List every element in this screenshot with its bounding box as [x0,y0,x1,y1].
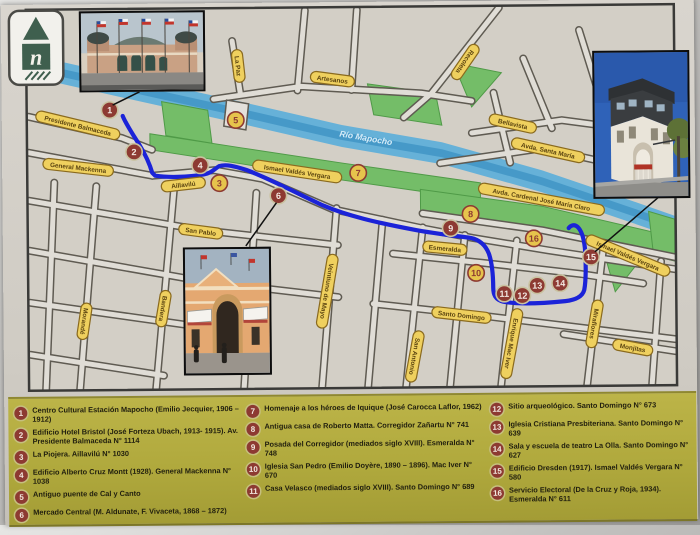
map-area: Presidente BalmacedaGeneral MackennaAill… [1,0,700,530]
map-marker-3: 3 [211,175,228,192]
legend-text: Edificio Dresden (1917). Ismael Valdés V… [509,462,695,482]
map-marker-9: 9 [442,220,459,237]
legend-text: Posada del Corregidor (mediados siglo XV… [265,438,483,458]
svg-text:12: 12 [517,291,527,301]
map-legend: 1Centro Cultural Estación Mapocho (Emili… [8,391,697,527]
svg-text:13: 13 [532,281,542,291]
svg-text:16: 16 [529,234,539,244]
map-marker-16: 16 [526,230,543,247]
legend-item-12: 12Sitio arqueológico. Santo Domingo N° 6… [490,400,694,416]
svg-text:1: 1 [107,105,112,115]
legend-badge: 4 [15,469,28,482]
legend-item-7: 7Homenaje a los héroes de Iquique (José … [246,402,482,418]
legend-text: Iglesia San Pedro (Emilio Doyère, 1890 –… [265,460,483,480]
svg-text:14: 14 [555,278,565,288]
svg-text:3: 3 [217,178,222,188]
legend-item-10: 10Iglesia San Pedro (Emilio Doyère, 1890… [247,460,483,480]
photo-estacion-mapocho [79,10,206,92]
map-marker-6: 6 [270,187,287,204]
svg-text:7: 7 [356,168,361,178]
legend-badge: 8 [246,423,259,436]
svg-text:2: 2 [131,147,136,157]
map-marker-7: 7 [350,165,367,182]
legend-badge: 3 [15,451,28,464]
svg-text:6: 6 [276,191,281,201]
legend-text: Homenaje a los héroes de Iquique (José C… [264,402,481,413]
legend-item-4: 4Edificio Alberto Cruz Montt (1928). Gen… [15,466,241,486]
legend-text: Mercado Central (M. Aldunate, F. Vivacet… [33,506,227,517]
map-marker-5: 5 [227,112,244,129]
svg-text:11: 11 [499,289,509,299]
legend-item-2: 2Edificio Hotel Bristol (José Forteza Ub… [14,426,240,446]
map-marker-11: 11 [496,285,513,302]
map-marker-13: 13 [529,277,546,294]
svg-text:10: 10 [471,268,481,278]
svg-text:9: 9 [448,223,453,233]
legend-item-8: 8Antigua casa de Roberto Matta. Corregid… [246,420,482,436]
legend-badge: 11 [247,485,260,498]
logo-letter: n [30,45,42,70]
svg-text:5: 5 [233,115,238,125]
printed-map-page: Presidente BalmacedaGeneral MackennaAill… [1,0,699,525]
publisher-logo: n [9,10,64,84]
legend-item-1: 1Centro Cultural Estación Mapocho (Emili… [14,404,240,424]
svg-text:15: 15 [586,252,596,262]
legend-text: La Piojera. Aillavilú N° 1030 [33,449,129,459]
legend-item-3: 3La Piojera. Aillavilú N° 1030 [15,448,241,464]
legend-badge: 9 [247,441,260,454]
map-marker-10: 10 [468,265,485,282]
legend-item-16: 16Servicio Electoral (De la Cruz y Roja,… [491,484,695,504]
legend-item-13: 13Iglesia Cristiana Presbiteriana. Santo… [490,418,694,438]
legend-column-2: 7Homenaje a los héroes de Iquique (José … [246,402,483,498]
legend-badge: 13 [490,421,503,434]
legend-item-6: 6Mercado Central (M. Aldunate, F. Vivace… [15,506,241,522]
legend-text: Servicio Electoral (De la Cruz y Roja, 1… [509,484,695,504]
legend-text: Antiguo puente de Cal y Canto [33,489,141,499]
svg-text:4: 4 [198,160,203,170]
map-marker-14: 14 [552,275,569,292]
legend-badge: 15 [491,465,504,478]
legend-badge: 12 [490,403,503,416]
legend-text: Edificio Hotel Bristol (José Forteza Uba… [32,426,240,446]
legend-item-14: 14Sala y escuela de teatro La Olla. Sant… [491,440,695,460]
legend-text: Sitio arqueológico. Santo Domingo N° 673 [508,400,656,410]
map-marker-12: 12 [514,287,531,304]
legend-badge: 6 [15,509,28,522]
legend-text: Edificio Alberto Cruz Montt (1928). Gene… [33,466,241,486]
legend-text: Iglesia Cristiana Presbiteriana. Santo D… [508,418,694,438]
map-marker-4: 4 [192,157,209,174]
legend-text: Antigua casa de Roberto Matta. Corregido… [264,420,469,431]
legend-badge: 10 [247,463,260,476]
legend-badge: 1 [14,407,27,420]
photo-mercado-central [183,247,272,376]
photo-edificio-dresden [592,50,690,199]
legend-text: Sala y escuela de teatro La Olla. Santo … [509,440,695,460]
legend-badge: 14 [491,443,504,456]
legend-badge: 7 [246,405,259,418]
legend-item-15: 15Edificio Dresden (1917). Ismael Valdés… [491,462,695,482]
legend-text: Centro Cultural Estación Mapocho (Emilio… [32,404,240,424]
svg-text:8: 8 [468,209,473,219]
legend-badge: 5 [15,491,28,504]
legend-badge: 16 [491,487,504,500]
legend-column-1: 1Centro Cultural Estación Mapocho (Emili… [14,404,241,522]
legend-item-9: 9Posada del Corregidor (mediados siglo X… [247,438,483,458]
map-marker-8: 8 [462,206,479,223]
legend-item-5: 5Antiguo puente de Cal y Canto [15,488,241,504]
legend-item-11: 11Casa Velasco (mediados siglo XVIII). S… [247,482,483,498]
legend-badge: 2 [14,429,27,442]
legend-text: Casa Velasco (mediados siglo XVIII). San… [265,482,475,493]
legend-column-3: 12Sitio arqueológico. Santo Domingo N° 6… [490,400,695,504]
map-marker-2: 2 [126,144,143,161]
